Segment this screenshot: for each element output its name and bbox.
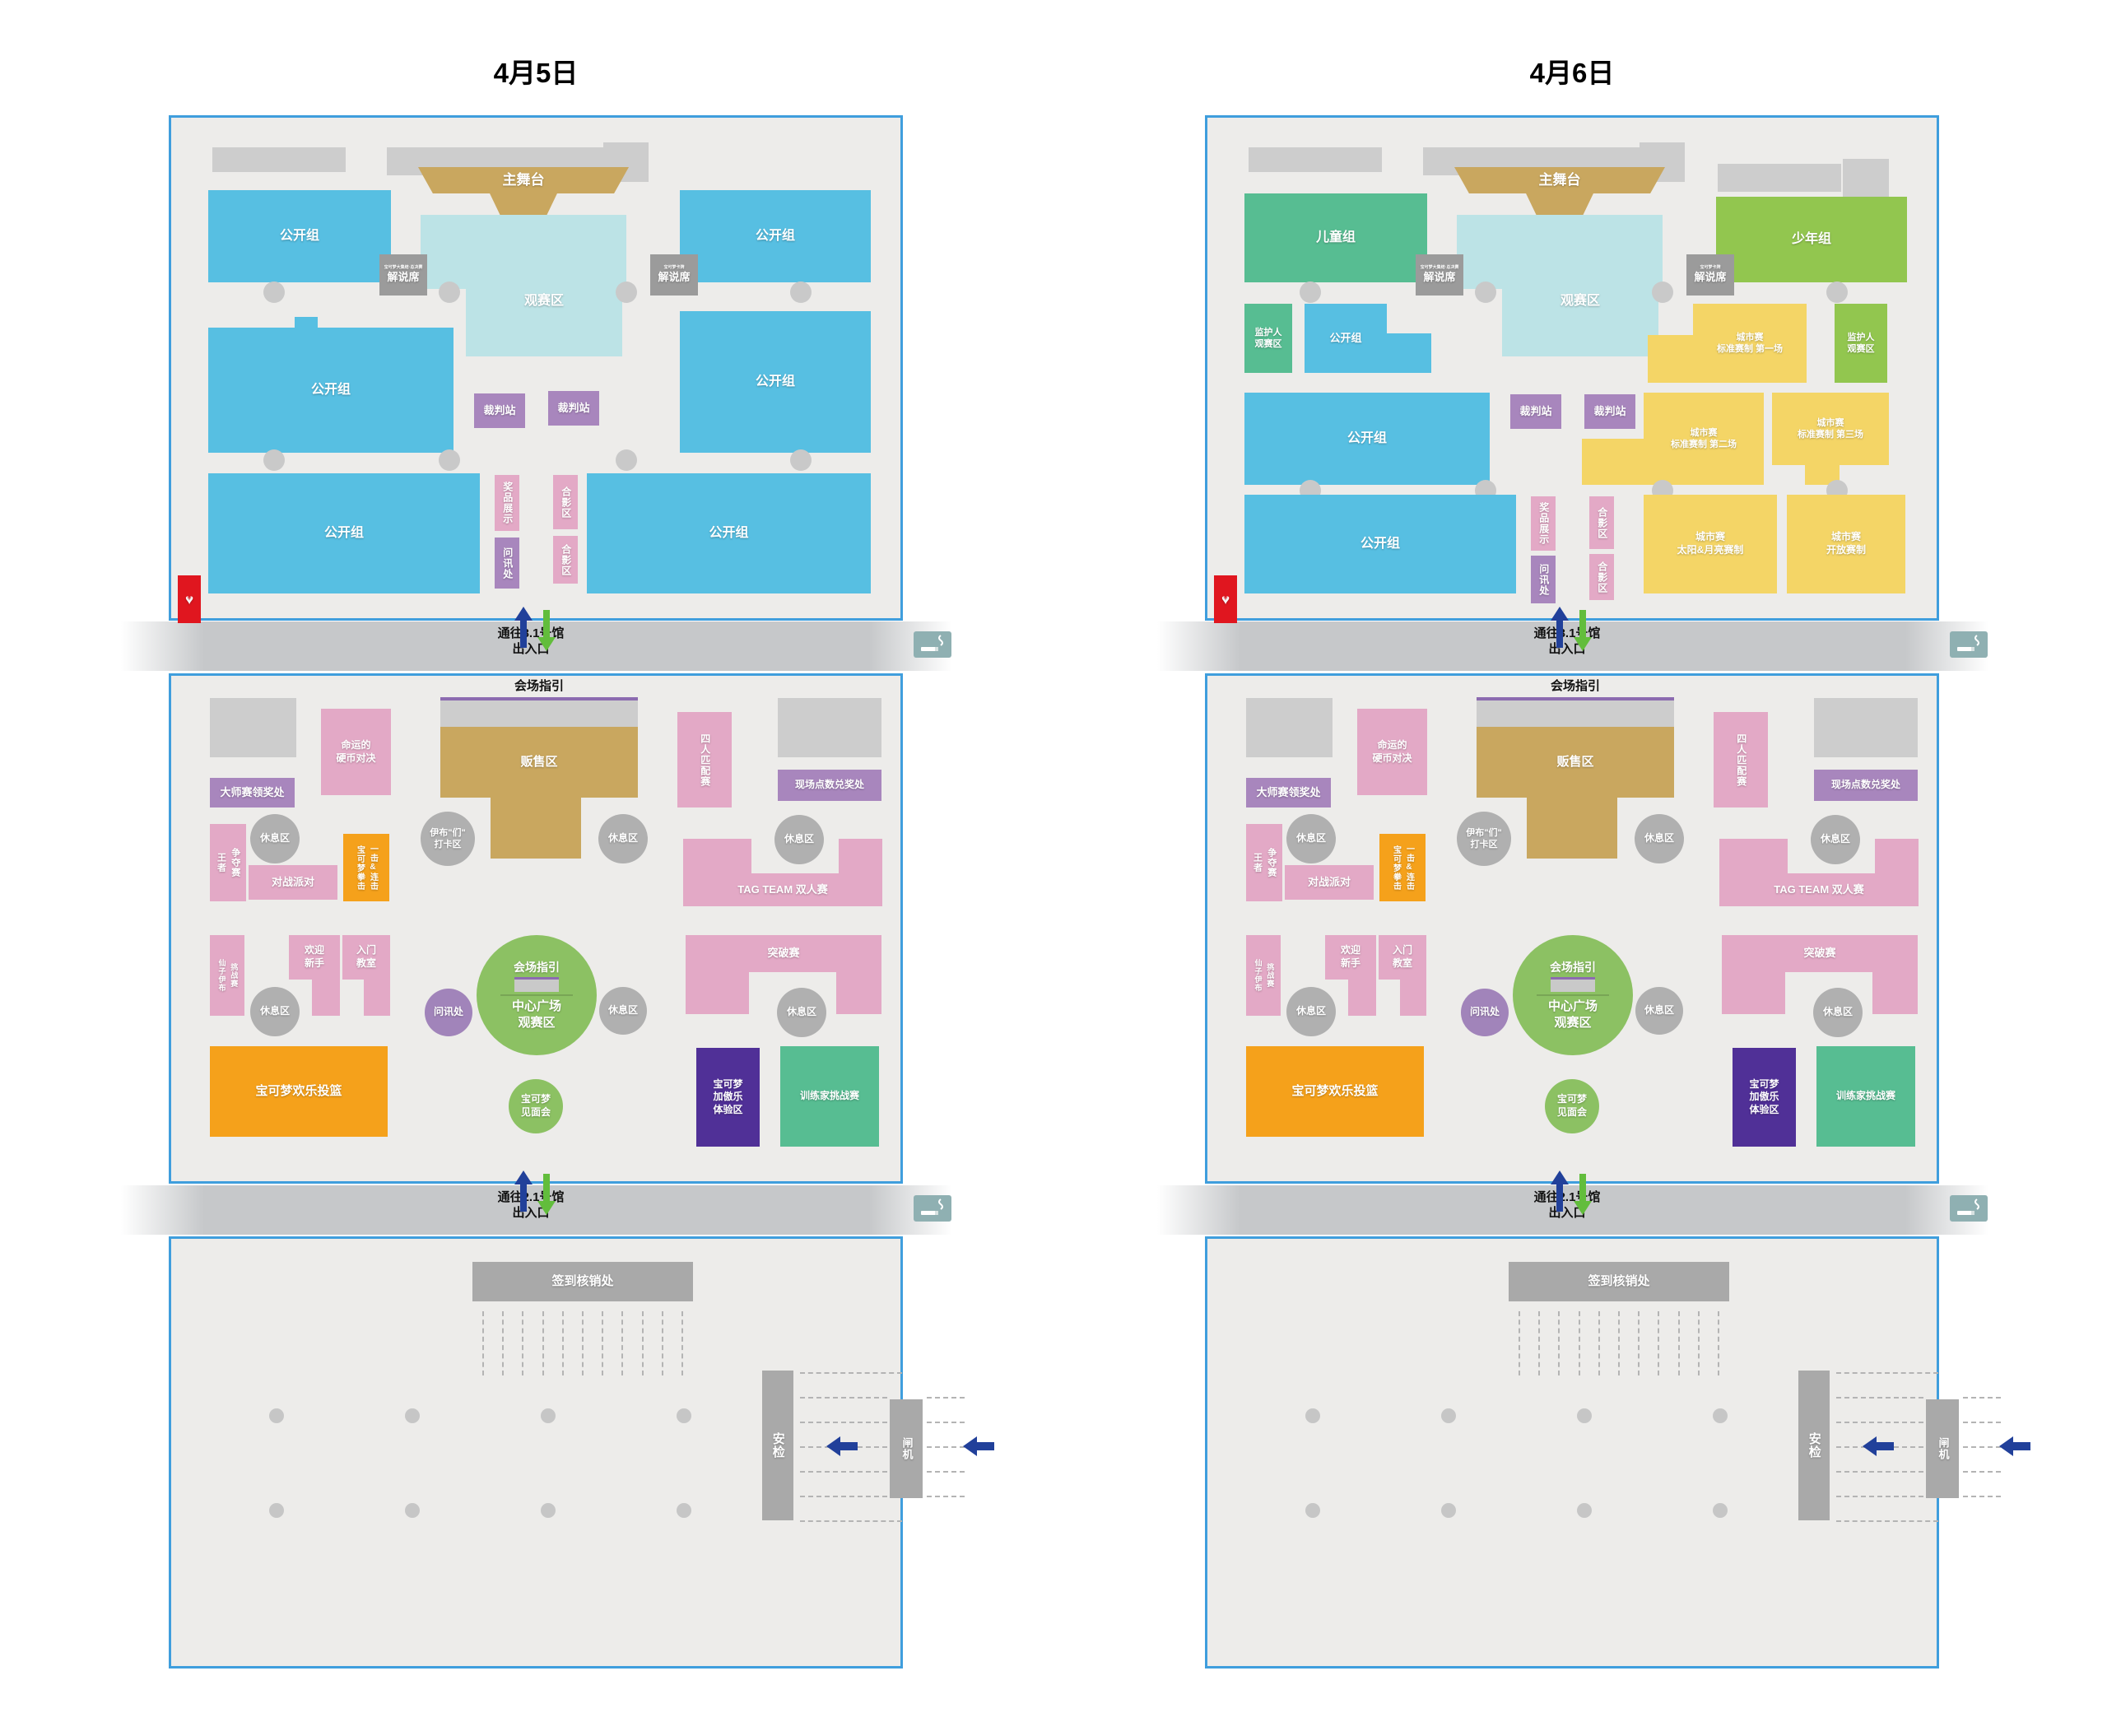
- pillar-dot: [1441, 1408, 1456, 1423]
- queue-lane: [1836, 1372, 1938, 1374]
- queue-lane: [1836, 1496, 1923, 1497]
- backstage-bar: [1249, 147, 1382, 172]
- tag-team-doubles: TAG TEAM 双人赛: [1719, 873, 1919, 906]
- rest-area: 休息区: [1286, 814, 1336, 863]
- commentary-booth: 宝可梦大集结·总决赛解说席: [379, 254, 427, 296]
- day-title: 4月5日: [169, 51, 903, 91]
- security-check: 安检: [1798, 1371, 1830, 1520]
- entry-up-arrow-icon: [514, 1171, 533, 1212]
- destiny-coin-duel: 命运的 硬币对决: [1357, 709, 1427, 795]
- breakthrough-contest: 突破赛: [686, 935, 881, 972]
- photo-area: 合影区: [553, 536, 578, 584]
- queue-lane: [1963, 1471, 2001, 1473]
- queue-line: [1658, 1311, 1659, 1375]
- hall-3-1: 主舞台观赛区公开组公开组宝可梦大集结·总决赛解说席宝可梦卡牌解说席公开组公开组裁…: [169, 115, 903, 621]
- queue-lane: [927, 1397, 965, 1399]
- checkin-desk: 签到核销处: [1509, 1262, 1729, 1301]
- photo-area: 合影区: [1589, 554, 1614, 600]
- flow-arrow-left-arrow-icon: [963, 1436, 994, 1456]
- beginner-classroom: 入门 教室: [342, 935, 390, 980]
- pokemon-boxing: 宝可梦拳击一击&连击: [343, 834, 389, 901]
- points-redemption-desk: 现场点数兑奖处: [1814, 770, 1918, 801]
- welcome-newbies: 欢迎 新手: [289, 935, 340, 980]
- city-league-standard-3: 城市赛 标准赛制 第三场: [1772, 393, 1889, 465]
- backstage-bar: [1718, 164, 1841, 192]
- photo-area: 合影区: [1589, 496, 1614, 549]
- city-league-standard-1: 城市赛 标准赛制 第一场: [1693, 304, 1807, 383]
- spectator-area: [1457, 215, 1663, 289]
- queue-line: [1618, 1311, 1620, 1375]
- welcome-newbies: 欢迎 新手: [1325, 935, 1376, 980]
- hall-3-1: 主舞台观赛区儿童组少年组宝可梦大集结·总决赛解说席宝可梦卡牌解说席监护人 观赛区…: [1205, 115, 1939, 621]
- open-division-block: 公开组: [680, 311, 871, 453]
- open-division-block: 公开组: [208, 473, 480, 593]
- rest-area: 休息区: [1813, 988, 1863, 1037]
- entry-up-arrow-icon: [514, 607, 533, 648]
- rest-area: 休息区: [1635, 987, 1683, 1035]
- eevee-photo-spot: 伊布"们" 打卡区: [1457, 812, 1511, 866]
- hall-2-1: 会场指引贩售区命运的 硬币对决大师赛领奖处休息区王者争夺赛对战派对宝可梦拳击一击…: [1205, 673, 1939, 1184]
- information-desk: 问讯处: [1461, 989, 1509, 1036]
- rest-area: 休息区: [598, 814, 648, 863]
- sylveon-challenge: 仙子伊布挑战赛: [210, 935, 244, 1016]
- four-player-match: 四人匹配赛: [677, 712, 732, 807]
- queue-line: [502, 1311, 504, 1375]
- queue-lane: [800, 1422, 887, 1423]
- commentary-booth: 宝可梦大集结·总决赛解说席: [1416, 254, 1463, 296]
- four-player-match: 四人匹配赛: [1714, 712, 1768, 807]
- city-league-sun-moon: 城市赛 太阳&月亮赛制: [1644, 495, 1777, 593]
- queue-lane: [1963, 1397, 2001, 1399]
- information-desk: 问讯处: [425, 989, 472, 1036]
- rest-area: 休息区: [777, 988, 826, 1037]
- entrance-hall: 签到核销处安检闸机: [169, 1236, 903, 1669]
- queue-lane: [800, 1471, 887, 1473]
- mini-stage-icon: [1551, 977, 1595, 992]
- queue-line: [621, 1311, 623, 1375]
- champion-contest: 王者争夺赛: [1246, 824, 1282, 901]
- commentary-booth: 宝可梦卡牌解说席: [1686, 254, 1734, 296]
- rest-area: 休息区: [1635, 814, 1684, 863]
- information-desk: 问讯处: [1531, 556, 1556, 603]
- pillar: [616, 282, 637, 303]
- pillar: [790, 449, 812, 471]
- guardian-viewing-area: 监护人 观赛区: [1835, 304, 1887, 383]
- pillar-dot: [677, 1408, 691, 1423]
- queue-lane: [1836, 1471, 1923, 1473]
- rest-area: 休息区: [774, 815, 824, 864]
- ga-ole-experience: 宝可梦 加傲乐 体验区: [1733, 1048, 1796, 1147]
- queue-line: [1538, 1311, 1540, 1375]
- commentary-booth: 宝可梦卡牌解说席: [650, 254, 698, 296]
- exit-down-arrow-icon: [1574, 610, 1592, 651]
- cross-glyph: +: [1223, 593, 1227, 603]
- pokemon-boxing: 宝可梦拳击一击&连击: [1379, 834, 1426, 901]
- queue-lane: [800, 1397, 887, 1399]
- prize-display: 奖品展示: [495, 475, 519, 531]
- pokemon-fun-hoops: 宝可梦欢乐投篮: [1246, 1046, 1424, 1137]
- rest-area: 休息区: [599, 987, 647, 1035]
- flow-arrow-left-arrow-icon: [1999, 1436, 2030, 1456]
- city-league-open-format: 城市赛 开放赛制: [1787, 495, 1905, 593]
- main-stage: 主舞台: [1454, 167, 1665, 220]
- city-league-standard-2: [1582, 439, 1644, 485]
- queue-lane: [1963, 1422, 2001, 1423]
- pillar-dot: [1305, 1503, 1320, 1518]
- pillar-dot: [1713, 1408, 1728, 1423]
- central-plaza-viewing: 会场指引中心广场 观赛区: [1513, 935, 1633, 1055]
- open-division-block: [1387, 333, 1431, 373]
- queue-line: [1678, 1311, 1680, 1375]
- open-division-block: 公开组: [208, 190, 391, 282]
- pillar: [263, 282, 285, 303]
- flow-arrow-left-arrow-icon: [1863, 1436, 1894, 1456]
- open-division-block: 公开组: [208, 328, 453, 453]
- entrance-hall: 签到核销处安检闸机: [1205, 1236, 1939, 1669]
- smoking-area-icon: [914, 1195, 951, 1222]
- security-check: 安检: [762, 1371, 793, 1520]
- pillar: [616, 449, 637, 471]
- rest-area: 休息区: [250, 987, 300, 1036]
- queue-line: [1519, 1311, 1520, 1375]
- pillar: [1300, 282, 1321, 303]
- pillar-dot: [1577, 1408, 1592, 1423]
- exit-down-arrow-icon: [537, 610, 556, 651]
- structure-block: [778, 698, 881, 757]
- smoking-area-icon: [1950, 1195, 1988, 1222]
- pillar-dot: [541, 1503, 556, 1518]
- guardian-viewing-area: 监护人 观赛区: [1244, 304, 1292, 373]
- exit-down-arrow-icon: [1574, 1174, 1592, 1215]
- sales-area: 贩售区: [440, 727, 638, 798]
- points-redemption-desk: 现场点数兑奖处: [778, 770, 881, 801]
- queue-line: [642, 1311, 644, 1375]
- pillar: [263, 449, 285, 471]
- pillar-dot: [1713, 1503, 1728, 1518]
- pillar: [1652, 282, 1673, 303]
- queue-lane: [1836, 1397, 1923, 1399]
- central-plaza-viewing: 会场指引中心广场 观赛区: [477, 935, 597, 1055]
- day-title: 4月6日: [1205, 51, 1939, 91]
- sales-area: [491, 798, 581, 859]
- queue-lane: [800, 1496, 887, 1497]
- queue-lane: [927, 1422, 965, 1423]
- hall-2-1: 会场指引贩售区命运的 硬币对决大师赛领奖处休息区王者争夺赛对战派对宝可梦拳击一击…: [169, 673, 903, 1184]
- kids-division-block: 儿童组: [1244, 193, 1427, 282]
- pillar-dot: [1441, 1503, 1456, 1518]
- backstage-bar: [212, 147, 346, 172]
- pillar: [439, 449, 460, 471]
- breakthrough-contest: [1722, 972, 1785, 1014]
- queue-lane: [800, 1520, 902, 1522]
- open-division-block: 公开组: [1305, 304, 1387, 373]
- destiny-coin-duel: 命运的 硬币对决: [321, 709, 391, 795]
- queue-line: [1718, 1311, 1719, 1375]
- pillar-dot: [677, 1503, 691, 1518]
- breakthrough-contest: [836, 972, 881, 1014]
- queue-line: [1598, 1311, 1600, 1375]
- information-desk: 问讯处: [495, 538, 519, 589]
- trainer-challenge: 训练家挑战赛: [780, 1046, 879, 1147]
- flow-arrow-left-arrow-icon: [826, 1436, 858, 1456]
- queue-line: [1638, 1311, 1640, 1375]
- stage-structure: [440, 700, 638, 727]
- pillar-dot: [1305, 1408, 1320, 1423]
- battle-party: 对战派对: [249, 865, 337, 900]
- first-aid-station: ♥+: [178, 575, 201, 623]
- main-stage: 主舞台: [418, 167, 629, 220]
- queue-lane: [1836, 1520, 1938, 1522]
- queue-lane: [1963, 1446, 2001, 1448]
- queue-line: [582, 1311, 584, 1375]
- pokemon-meet-greet: 宝可梦 见面会: [509, 1079, 563, 1133]
- sales-area: 贩售区: [1477, 727, 1674, 798]
- entry-up-arrow-icon: [1551, 1171, 1569, 1212]
- tag-team-doubles: TAG TEAM 双人赛: [683, 873, 882, 906]
- queue-line: [542, 1311, 544, 1375]
- queue-line: [1698, 1311, 1700, 1375]
- smoking-area-icon: [1950, 631, 1988, 658]
- spectator-area: 观赛区: [466, 287, 622, 356]
- sales-area: [1527, 798, 1617, 859]
- masters-prize-desk: 大师赛领奖处: [1246, 778, 1331, 807]
- welcome-newbies: [312, 980, 340, 1016]
- welcome-newbies: [1348, 980, 1376, 1016]
- rest-area: 休息区: [1811, 815, 1860, 864]
- cross-glyph: +: [187, 593, 191, 603]
- venue-map-poster: 4月5日 4月6日 主舞台观赛区公开组公开组宝可梦大集结·总决赛解说席宝可梦卡牌…: [0, 0, 2107, 1736]
- queue-line: [1579, 1311, 1580, 1375]
- spectator-area: 观赛区: [1502, 287, 1658, 356]
- exit-down-arrow-icon: [537, 1174, 556, 1215]
- structure-block: [1814, 698, 1918, 757]
- queue-line: [522, 1311, 523, 1375]
- open-division-block: 公开组: [587, 473, 871, 593]
- rest-area: 休息区: [1286, 987, 1336, 1036]
- pokemon-fun-hoops: 宝可梦欢乐投篮: [210, 1046, 388, 1137]
- venue-guide-sign: 会场指引: [440, 677, 638, 696]
- eevee-photo-spot: 伊布"们" 打卡区: [421, 812, 475, 866]
- referee-station: 裁判站: [548, 391, 599, 426]
- first-aid-station: ♥+: [1214, 575, 1237, 623]
- pillar: [790, 282, 812, 303]
- junior-division-block: 少年组: [1716, 197, 1907, 282]
- tag-team-doubles: [839, 839, 882, 875]
- pillar-dot: [405, 1503, 420, 1518]
- queue-lane: [927, 1446, 965, 1448]
- pillar-dot: [541, 1408, 556, 1423]
- queue-lane: [1836, 1422, 1923, 1423]
- pillar-dot: [269, 1503, 284, 1518]
- beginner-classroom: [364, 980, 390, 1016]
- queue-line: [681, 1311, 683, 1375]
- rest-area: 休息区: [250, 814, 300, 863]
- breakthrough-contest: 突破赛: [1722, 935, 1918, 972]
- queue-line: [662, 1311, 663, 1375]
- queue-lane: [1963, 1496, 2001, 1497]
- queue-line: [602, 1311, 603, 1375]
- breakthrough-contest: [686, 972, 749, 1014]
- sylveon-challenge: 仙子伊布挑战赛: [1246, 935, 1281, 1016]
- pillar: [439, 282, 460, 303]
- queue-line: [562, 1311, 564, 1375]
- queue-line: [1558, 1311, 1560, 1375]
- pillar-dot: [1577, 1503, 1592, 1518]
- pillar-dot: [269, 1408, 284, 1423]
- spectator-area: [421, 215, 626, 289]
- prize-display: 奖品展示: [1531, 496, 1556, 551]
- ga-ole-experience: 宝可梦 加傲乐 体验区: [696, 1048, 760, 1147]
- checkin-desk: 签到核销处: [472, 1262, 693, 1301]
- queue-lane: [927, 1496, 965, 1497]
- pillar: [1826, 282, 1848, 303]
- gate: 闸机: [890, 1399, 923, 1498]
- referee-station: 裁判站: [1510, 394, 1561, 429]
- open-division-block: 公开组: [680, 190, 871, 282]
- queue-lines: [1519, 1311, 1719, 1375]
- city-league-standard-1: [1648, 335, 1693, 383]
- city-league-standard-2: 城市赛 标准赛制 第二场: [1644, 393, 1764, 485]
- open-division-block: 公开组: [1244, 495, 1516, 593]
- tag-team-doubles: [1719, 839, 1788, 875]
- queue-lane: [800, 1372, 902, 1374]
- referee-station: 裁判站: [1584, 394, 1635, 429]
- tag-team-doubles: [683, 839, 751, 875]
- pokemon-meet-greet: 宝可梦 见面会: [1545, 1079, 1599, 1133]
- smoking-area-icon: [914, 631, 951, 658]
- breakthrough-contest: [1872, 972, 1918, 1014]
- referee-station: 裁判站: [474, 393, 525, 428]
- queue-lines: [482, 1311, 683, 1375]
- structure-block: [1246, 698, 1333, 757]
- masters-prize-desk: 大师赛领奖处: [210, 778, 295, 807]
- mini-stage-icon: [514, 977, 559, 992]
- photo-area: 合影区: [553, 475, 578, 529]
- gate: 闸机: [1926, 1399, 1959, 1498]
- tag-team-doubles: [1875, 839, 1919, 875]
- queue-lane: [927, 1471, 965, 1473]
- stage-structure: [1477, 700, 1674, 727]
- door-tab: [295, 317, 318, 328]
- structure-block: [210, 698, 296, 757]
- trainer-challenge: 训练家挑战赛: [1816, 1046, 1915, 1147]
- beginner-classroom: 入门 教室: [1379, 935, 1426, 980]
- queue-line: [482, 1311, 484, 1375]
- champion-contest: 王者争夺赛: [210, 824, 246, 901]
- beginner-classroom: [1400, 980, 1426, 1016]
- open-division-block: 公开组: [1244, 393, 1490, 485]
- pillar: [1475, 282, 1496, 303]
- entry-up-arrow-icon: [1551, 607, 1569, 648]
- pillar-dot: [405, 1408, 420, 1423]
- battle-party: 对战派对: [1285, 865, 1374, 900]
- venue-guide-sign: 会场指引: [1477, 677, 1674, 696]
